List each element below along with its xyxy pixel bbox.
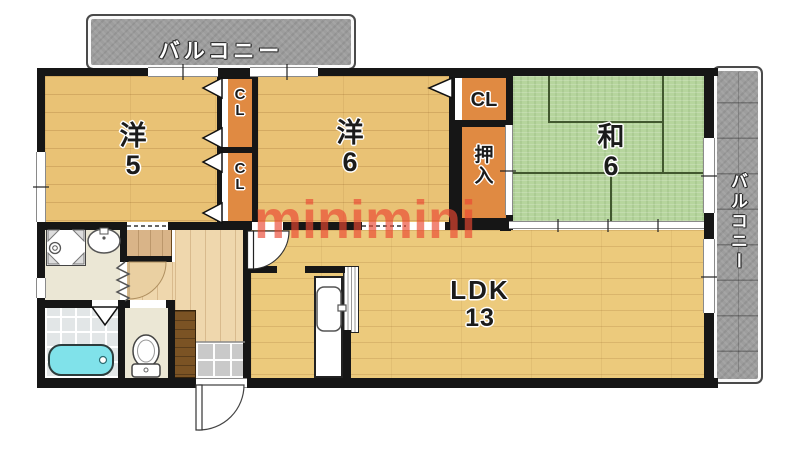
- room-japanese6-text: 和6: [596, 123, 625, 181]
- door-arc-entrance-icon: [199, 385, 244, 430]
- watermark: minimini: [254, 193, 476, 247]
- room-ldk-label: LDK 13: [430, 276, 530, 332]
- pan-corner: [73, 253, 84, 264]
- pan-corner: [73, 230, 84, 241]
- bathroom-door-marker-icon: [92, 307, 118, 325]
- folding-door-marker-icon: [203, 78, 222, 98]
- accordion-door-icon: [117, 262, 129, 301]
- floor-plan: バルコニー バルコニー: [0, 0, 800, 451]
- room-western6-text: 洋6: [335, 119, 364, 177]
- closet-left-bottom-label: CL: [228, 161, 252, 193]
- room-ldk-size: 13: [430, 305, 530, 333]
- door-leaf-ldk: [248, 231, 254, 269]
- closet-right-label: CL: [462, 89, 506, 112]
- folding-door-marker-icon: [429, 78, 452, 98]
- oshiire-label: 押入: [462, 146, 506, 188]
- folding-door-marker-icon: [203, 128, 222, 148]
- kitchen-faucet-icon: [338, 305, 346, 311]
- closet-left-bottom-text: CL: [232, 161, 248, 193]
- oshiire-text: 押入: [474, 146, 495, 187]
- drain-icon: [50, 243, 61, 254]
- pan-corner: [48, 253, 59, 264]
- closet-left-top-label: CL: [228, 87, 252, 119]
- folding-door-marker-icon: [203, 203, 222, 223]
- pan-corner: [48, 230, 59, 241]
- folding-door-marker-icon: [203, 152, 222, 172]
- room-western6-label: 洋6: [322, 119, 378, 178]
- room-japanese6-label: 和6: [583, 123, 639, 182]
- folding-door-arc-washroom-icon: [129, 262, 166, 299]
- closet-left-top-text: CL: [232, 87, 248, 119]
- room-ldk-text: LDK: [430, 276, 530, 305]
- bathtub-drain: [100, 357, 107, 364]
- washbasin-drain: [102, 236, 105, 239]
- room-western5-text: 洋5: [118, 122, 147, 180]
- kitchen-sink-icon: [317, 287, 341, 331]
- door-leaf-entrance: [196, 385, 202, 430]
- faucet-icon: [100, 228, 108, 234]
- room-western5-label: 洋5: [105, 122, 161, 181]
- toilet-tank: [132, 364, 160, 377]
